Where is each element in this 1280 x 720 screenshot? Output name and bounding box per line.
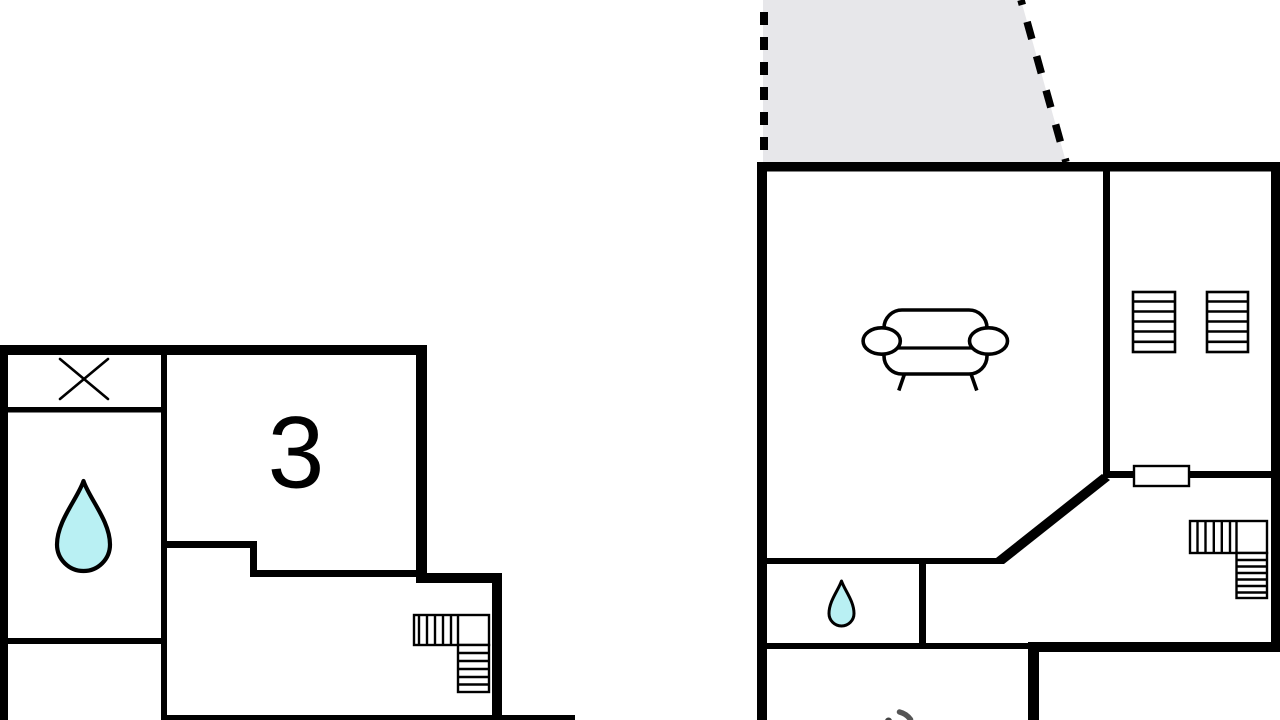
svg-text:3: 3: [268, 396, 325, 510]
